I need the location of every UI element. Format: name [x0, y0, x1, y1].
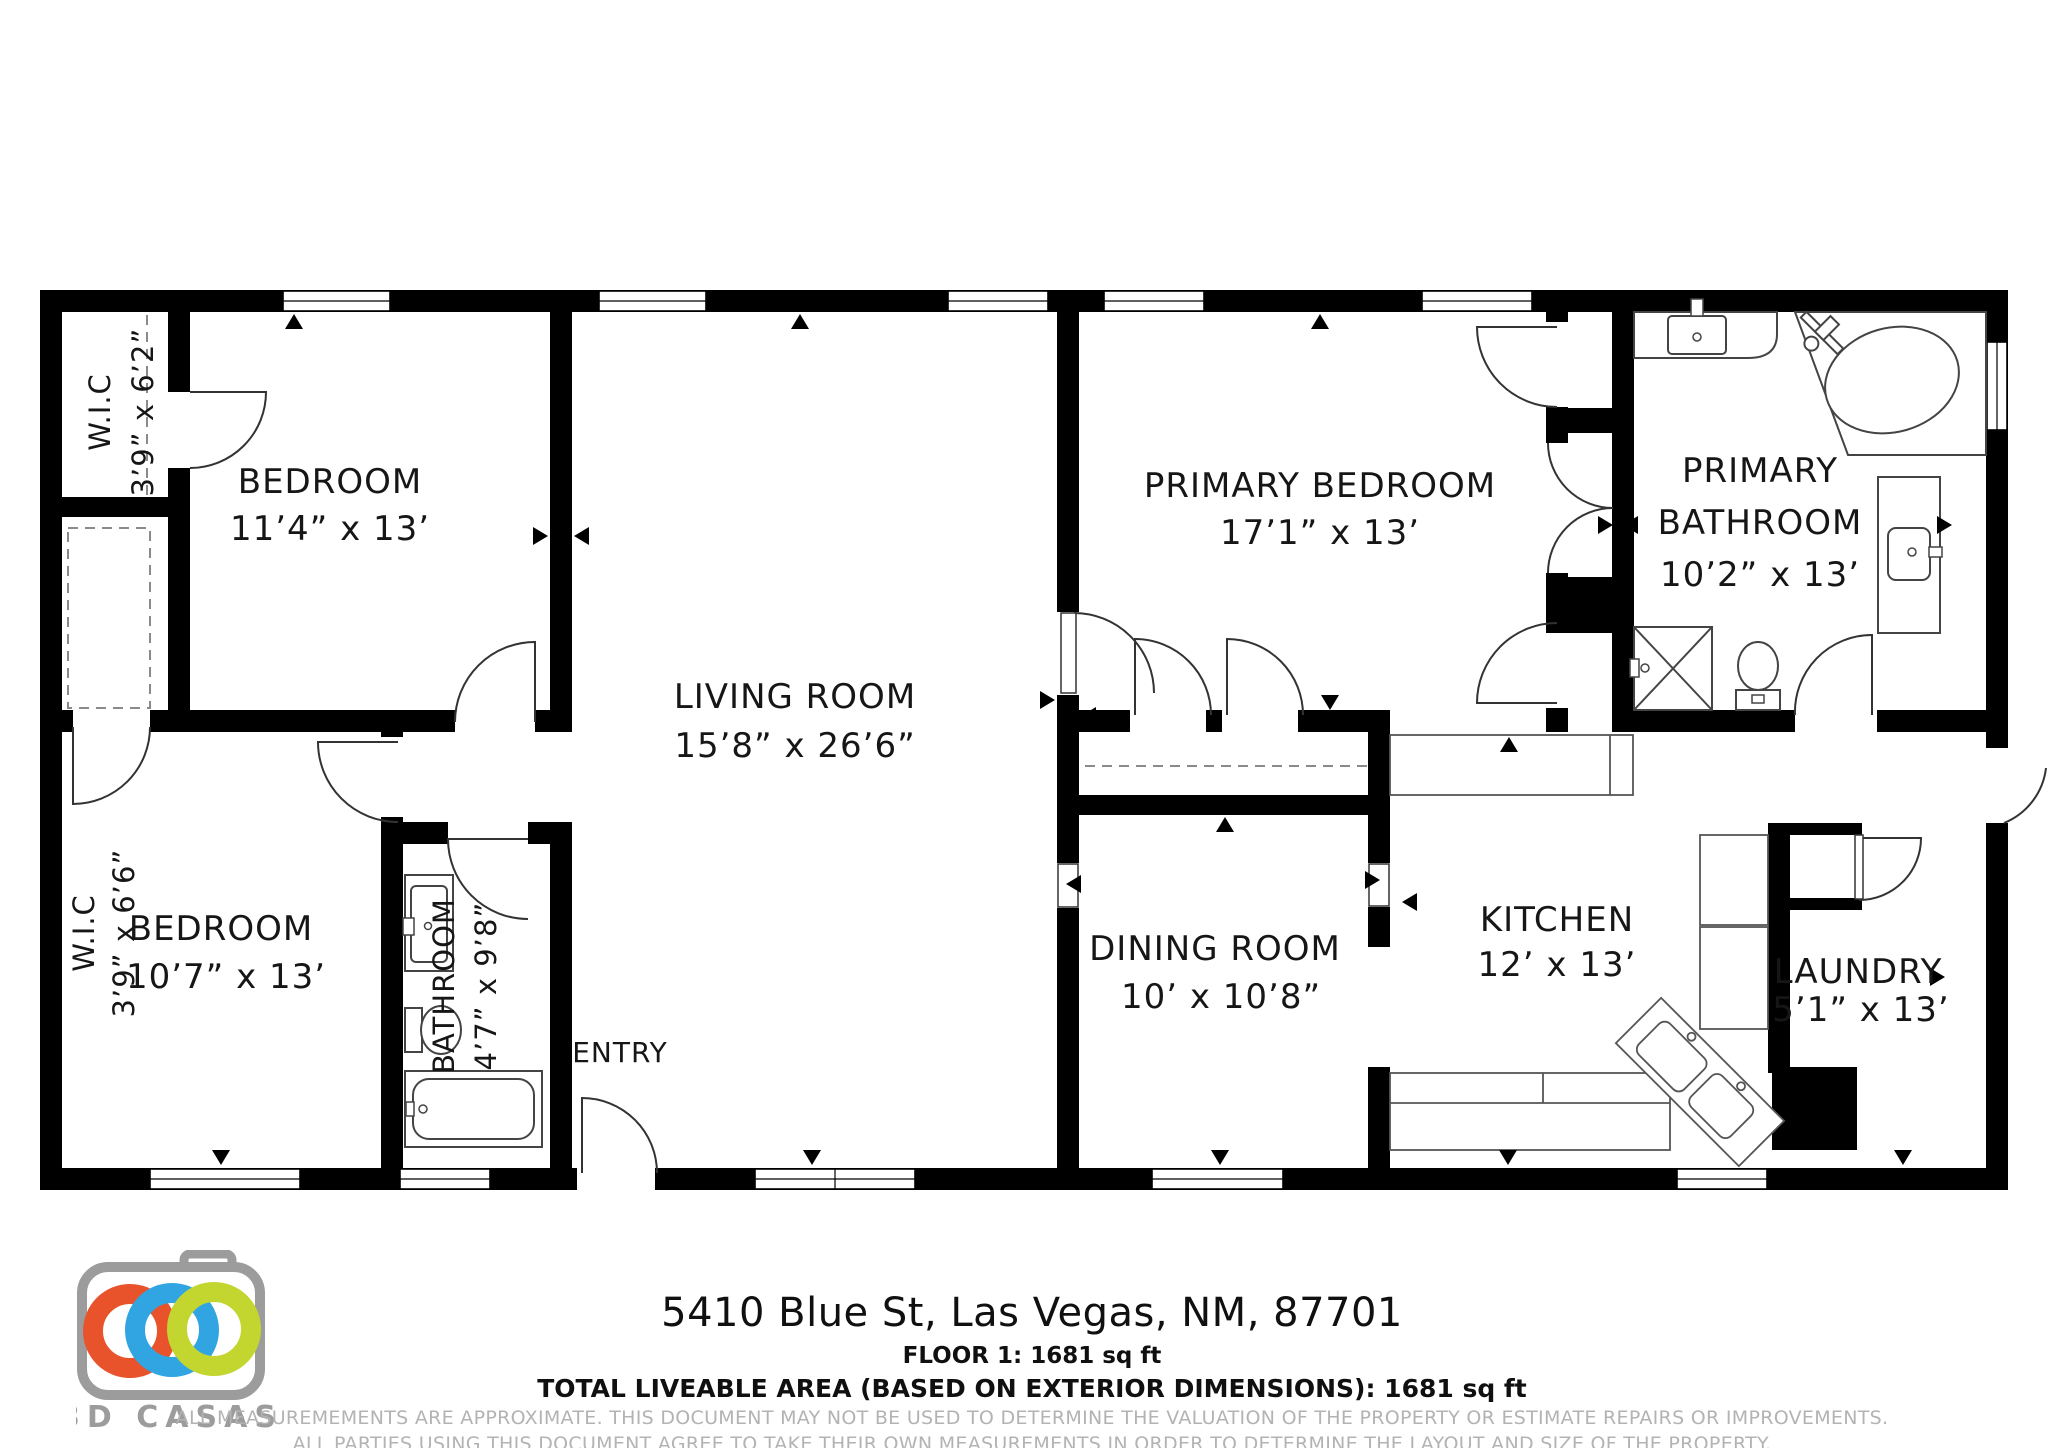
floor-area-line: FLOOR 1: 1681 sq ft [16, 1343, 2048, 1369]
room-label-primary-bath-2: BATHROOM [1658, 503, 1863, 543]
door-primary-closet-2 [1227, 639, 1303, 715]
svg-text:W.I.C: W.I.C [67, 894, 101, 972]
footer: 5410 Blue St, Las Vegas, NM, 87701 FLOOR… [16, 1290, 2048, 1448]
svg-text:4’7” x 9’8”: 4’7” x 9’8” [469, 902, 503, 1071]
floor-plan-drawing: BEDROOM 11’4” x 13’ LIVING ROOM 15’8” x … [0, 0, 2048, 1448]
room-dims-dining: 10’ x 10’8” [1121, 977, 1321, 1017]
room-label-wic-bottom: W.I.C 3’9” x 6’6” [67, 849, 141, 1018]
kitchen-counter-bottom [1390, 1073, 1670, 1150]
svg-text:BATHROOM: BATHROOM [427, 898, 461, 1074]
svg-text:3’9” x 6’6”: 3’9” x 6’6” [107, 849, 141, 1018]
room-dims-living: 15’8” x 26’6” [674, 726, 915, 766]
property-address: 5410 Blue St, Las Vegas, NM, 87701 [16, 1290, 2048, 1336]
room-label-wic-top: W.I.C 3’9” x 6’2” [83, 328, 160, 497]
door-laundry-closet [1859, 838, 1921, 900]
door-primary-bedroom [1074, 613, 1154, 693]
room-label-dining: DINING ROOM [1089, 929, 1341, 969]
pass-through-openings [1058, 864, 1389, 907]
room-dims-bedroom-top: 11’4” x 13’ [230, 509, 430, 549]
room-dims-kitchen: 12’ x 13’ [1478, 945, 1637, 985]
door-primary-closet-1 [1135, 639, 1211, 715]
disclaimer-line-1: ALL MEASUREMEMENTS ARE APPROXIMATE. THIS… [16, 1407, 2048, 1429]
room-label-primary-bath-1: PRIMARY [1682, 451, 1838, 491]
door-laundry-closet-leaf [1855, 835, 1863, 899]
room-label-kitchen: KITCHEN [1480, 900, 1634, 940]
room-label-primary-bedroom: PRIMARY BEDROOM [1144, 466, 1496, 506]
room-label-bedroom-top: BEDROOM [238, 462, 422, 502]
door-wic-bottom [73, 727, 150, 804]
room-dims-laundry: 5’1” x 13’ [1772, 990, 1950, 1030]
room-label-entry: ENTRY [572, 1036, 668, 1069]
dining-kitchen-passage [1369, 864, 1389, 906]
bathroom-tub-icon [405, 1071, 542, 1147]
disclaimer-line-2: ALL PARTIES USING THIS DOCUMENT AGREE TO… [16, 1433, 2048, 1448]
room-dims-primary-bedroom: 17’1” x 13’ [1220, 513, 1420, 553]
kitchen-cabinets-right [1700, 835, 1768, 1029]
utility-black-box [1772, 1067, 1857, 1150]
room-label-bathroom: BATHROOM 4’7” x 9’8” [427, 898, 503, 1074]
room-label-bedroom-bottom: BEDROOM [129, 909, 313, 949]
svg-text:3’9” x 6’2”: 3’9” x 6’2” [126, 328, 160, 497]
primary-bath-toilet-icon [1736, 642, 1780, 710]
room-label-laundry: LAUNDRY [1774, 952, 1943, 992]
room-dims-bedroom-bottom: 10’7” x 13’ [126, 957, 326, 997]
wic-bottom-dash [68, 528, 150, 708]
primary-bath-corner-tub-icon [1788, 302, 1986, 455]
door-closet-c [1477, 623, 1557, 703]
door-entry [582, 1098, 657, 1173]
room-label-living: LIVING ROOM [674, 677, 916, 717]
svg-text:W.I.C: W.I.C [83, 373, 117, 451]
floor-plan-page: BEDROOM 11’4” x 13’ LIVING ROOM 15’8” x … [0, 0, 2048, 1448]
door-wic-top [190, 392, 266, 468]
primary-bath-shower-icon [1630, 627, 1712, 710]
primary-bath-vanity2-icon [1878, 477, 1942, 633]
total-area-line: TOTAL LIVEABLE AREA (BASED ON EXTERIOR D… [16, 1374, 2048, 1403]
door-closet-a [1477, 327, 1557, 407]
room-dims-primary-bath: 10’2” x 13’ [1660, 555, 1860, 595]
door-primary-bedroom-leaf [1061, 613, 1076, 693]
door-exterior-laundry [2004, 768, 2046, 823]
door-primary-bathroom [1795, 635, 1872, 715]
